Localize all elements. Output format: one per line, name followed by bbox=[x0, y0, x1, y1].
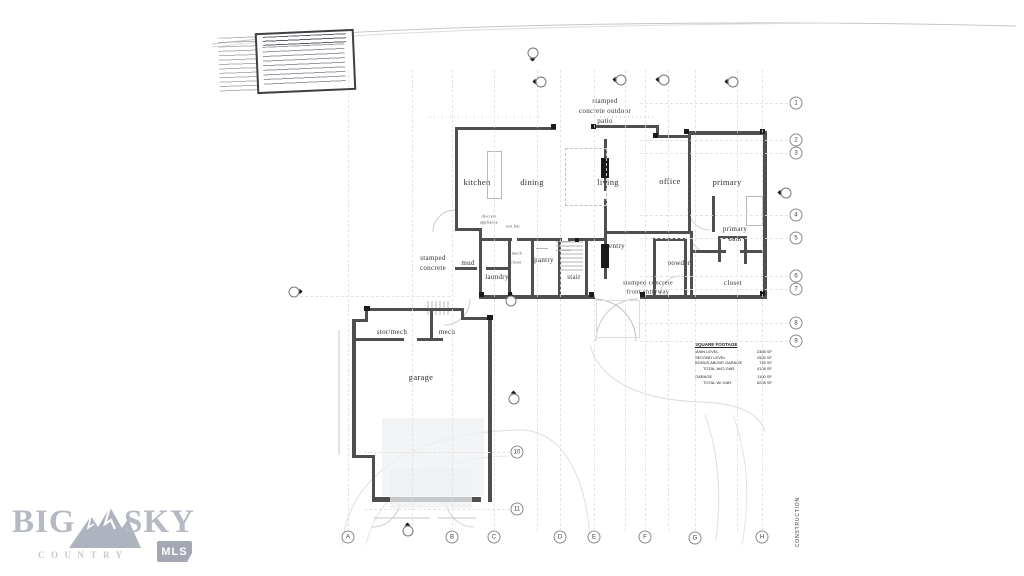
section-marker-icon bbox=[506, 296, 517, 307]
grid-column-bubble-e: E bbox=[588, 531, 601, 544]
label-stamped-concrete-line1: stamped bbox=[420, 254, 445, 262]
label-patio-line3: patio bbox=[597, 117, 613, 125]
sqft-table-title: SQUARE FOOTAGE bbox=[695, 342, 772, 347]
wall-segment bbox=[640, 295, 767, 299]
sqft-table: SQUARE FOOTAGE MAIN LEVEL2385 SF SECOND … bbox=[695, 342, 772, 386]
door-jamb-block bbox=[364, 306, 370, 311]
grid-row-bubble-5: 5 bbox=[790, 232, 803, 245]
section-marker-icon bbox=[403, 526, 414, 537]
wall-segment bbox=[656, 135, 690, 138]
section-marker-icon bbox=[289, 287, 300, 298]
door-jamb-block bbox=[653, 133, 658, 138]
section-marker-triangle-icon bbox=[508, 290, 514, 296]
grid-row-bubble-9: 9 bbox=[790, 335, 803, 348]
wall-segment bbox=[455, 267, 477, 270]
construction-vertical-text: CONSTRUCTION bbox=[795, 497, 801, 547]
label-stamped-concrete-line2: concrete bbox=[420, 264, 446, 272]
section-marker-icon bbox=[659, 75, 670, 86]
wall-segment bbox=[455, 127, 458, 231]
room-label-mech-small: mech bbox=[512, 251, 522, 256]
door-jamb-block bbox=[684, 129, 689, 134]
section-marker-triangle-icon bbox=[722, 79, 728, 85]
wall-segment bbox=[488, 317, 492, 502]
wall-segment bbox=[585, 238, 588, 298]
section-marker-triangle-icon bbox=[300, 289, 306, 295]
wall-segment bbox=[744, 236, 747, 264]
grid-line-vertical bbox=[348, 70, 349, 531]
door-jamb-block bbox=[575, 238, 579, 242]
grid-line-vertical bbox=[625, 70, 626, 531]
grid-column-bubble-c: C bbox=[488, 531, 501, 544]
wall-segment bbox=[417, 338, 443, 341]
wall-segment bbox=[455, 127, 556, 130]
wall-segment bbox=[718, 236, 721, 262]
wall-segment bbox=[690, 231, 693, 296]
wall-segment bbox=[684, 238, 687, 296]
grid-column-bubble-a: A bbox=[342, 531, 355, 544]
door-jamb-block bbox=[479, 292, 484, 297]
door-jamb-block bbox=[601, 244, 609, 268]
section-marker-icon bbox=[509, 394, 520, 405]
grid-row-bubble-3: 3 bbox=[790, 147, 803, 160]
door-jamb-block bbox=[487, 315, 493, 320]
label-patio-line2: concrete outdoor bbox=[579, 107, 631, 115]
grid-row-bubble-4: 4 bbox=[790, 209, 803, 222]
wall-segment bbox=[352, 455, 374, 458]
door-jamb-block bbox=[551, 124, 556, 129]
section-marker-icon bbox=[781, 188, 792, 199]
grid-row-bubble-8: 8 bbox=[790, 317, 803, 330]
sqft-label: TOTAL W/ GAR. bbox=[703, 380, 732, 386]
wall-segment bbox=[653, 238, 656, 296]
wall-segment bbox=[688, 131, 691, 233]
grid-line-horizontal bbox=[364, 509, 510, 510]
grid-line-horizontal bbox=[640, 153, 788, 154]
section-marker-triangle-icon bbox=[653, 77, 659, 83]
grid-line-horizontal bbox=[640, 140, 788, 141]
sqft-label: TOTAL W/O GAR. bbox=[703, 366, 735, 372]
schedule-table bbox=[255, 29, 357, 94]
grid-line-horizontal bbox=[640, 103, 788, 104]
plan-linework-svg bbox=[0, 0, 1024, 576]
grid-line-vertical bbox=[412, 70, 413, 531]
grid-row-bubble-6: 6 bbox=[790, 270, 803, 283]
garage-floor-tint bbox=[390, 468, 472, 508]
logo-word-sky: SKY bbox=[124, 504, 195, 541]
wall-segment bbox=[688, 131, 766, 135]
room-label-mud: mud bbox=[461, 259, 474, 267]
label-patio-line1: stamped bbox=[592, 97, 617, 105]
grid-line-horizontal bbox=[640, 238, 788, 239]
label-wet-bar: wet bar bbox=[506, 224, 520, 229]
label-appliance-line2: appliance bbox=[480, 220, 498, 225]
grid-column-bubble-d: D bbox=[554, 531, 567, 544]
grid-line-horizontal bbox=[364, 452, 510, 453]
grid-line-vertical bbox=[594, 70, 595, 531]
room-label-closet-small: closet bbox=[510, 260, 521, 265]
grid-line-horizontal bbox=[640, 215, 788, 216]
room-label-primary-bath-line1: primary bbox=[723, 225, 747, 233]
grid-line-horizontal bbox=[640, 341, 788, 342]
logo-word-country: COUNTRY bbox=[38, 550, 129, 560]
wall-segment bbox=[531, 238, 534, 296]
room-label-stor-mech: stor/mech bbox=[377, 328, 407, 336]
grid-line-vertical bbox=[560, 70, 561, 531]
grid-line-vertical bbox=[537, 70, 538, 531]
grid-row-bubble-7: 7 bbox=[790, 283, 803, 296]
grid-line-horizontal bbox=[300, 296, 450, 297]
grid-line-horizontal bbox=[640, 289, 788, 290]
big-sky-country-mls-logo: BIG SKY COUNTRY MLS bbox=[10, 498, 225, 570]
grid-column-bubble-g: G bbox=[689, 532, 702, 545]
wall-segment bbox=[352, 338, 404, 341]
wall-segment bbox=[596, 125, 658, 128]
schedule-notes-smudge bbox=[218, 36, 259, 91]
grid-row-bubble-10: 10 bbox=[511, 446, 524, 459]
wall-segment bbox=[712, 196, 715, 232]
room-label-entry: entry bbox=[609, 242, 625, 250]
room-label-laundry: laundry bbox=[485, 273, 508, 281]
label-front-entry-line1: stamped concrete bbox=[623, 280, 673, 287]
section-marker-icon bbox=[616, 75, 627, 86]
wall-segment bbox=[604, 231, 690, 234]
wall-segment bbox=[486, 267, 508, 270]
sqft-value: 4128 SF bbox=[757, 366, 772, 372]
section-marker-triangle-icon bbox=[530, 79, 536, 85]
grid-line-vertical bbox=[494, 70, 495, 531]
wall-segment bbox=[430, 308, 433, 340]
living-ceiling-outline bbox=[565, 148, 607, 206]
room-label-office: office bbox=[659, 176, 680, 186]
entry-stoop-outline bbox=[596, 300, 640, 338]
wall-segment bbox=[461, 317, 490, 320]
wall-segment bbox=[763, 131, 767, 296]
shower-outline bbox=[746, 196, 763, 226]
grid-row-bubble-1: 1 bbox=[790, 97, 803, 110]
grid-column-bubble-h: H bbox=[756, 531, 769, 544]
section-marker-icon bbox=[728, 77, 739, 88]
grid-row-bubble-2: 2 bbox=[790, 134, 803, 147]
sqft-value: 5228 SF bbox=[757, 380, 772, 386]
grid-column-bubble-b: B bbox=[446, 531, 459, 544]
grid-column-bubble-f: F bbox=[639, 531, 652, 544]
section-marker-triangle-icon bbox=[530, 59, 536, 65]
wall-segment bbox=[455, 228, 482, 231]
grid-row-bubble-11: 11 bbox=[511, 503, 524, 516]
section-marker-icon bbox=[536, 77, 547, 88]
schedule-table-body-smudge bbox=[262, 43, 346, 87]
grid-line-vertical bbox=[452, 70, 453, 531]
grid-line-horizontal bbox=[640, 323, 788, 324]
section-marker-icon bbox=[528, 48, 539, 59]
mls-badge: MLS bbox=[157, 541, 192, 562]
section-marker-triangle-icon bbox=[511, 388, 517, 394]
section-marker-triangle-icon bbox=[610, 77, 616, 83]
section-marker-triangle-icon bbox=[775, 190, 781, 196]
room-label-stair: stair bbox=[567, 273, 581, 281]
stair-note-smudge bbox=[556, 241, 571, 254]
grid-line-horizontal bbox=[640, 276, 788, 277]
floor-plan-sheet: kitchen dining living office primary pri… bbox=[0, 0, 1024, 576]
room-label-dining: dining bbox=[520, 177, 544, 187]
wall-segment bbox=[365, 308, 463, 311]
wall-segment bbox=[508, 238, 511, 296]
section-marker-triangle-icon bbox=[405, 520, 411, 526]
room-label-closet-primary: closet bbox=[724, 279, 742, 287]
wall-segment bbox=[372, 455, 375, 500]
